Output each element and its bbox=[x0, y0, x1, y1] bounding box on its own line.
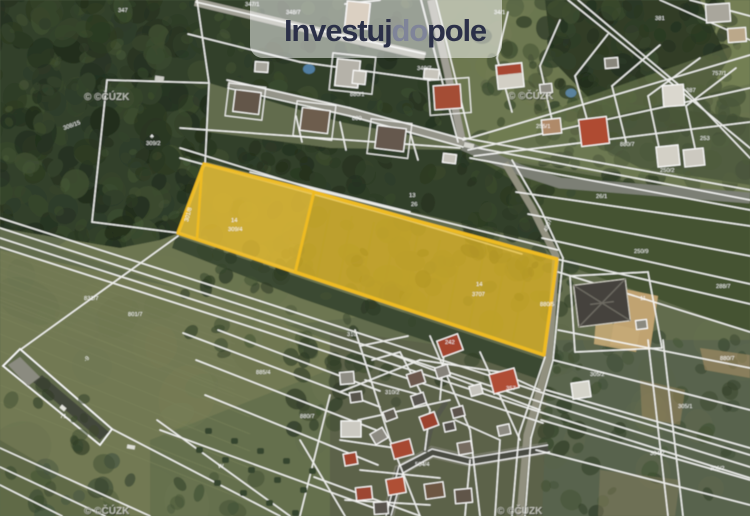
svg-text:13: 13 bbox=[409, 193, 415, 199]
svg-text:255/1: 255/1 bbox=[536, 124, 551, 130]
svg-text:880/7: 880/7 bbox=[620, 142, 635, 148]
svg-text:304/2: 304/2 bbox=[650, 451, 665, 457]
svg-text:250/2: 250/2 bbox=[660, 168, 675, 174]
svg-text:880/7: 880/7 bbox=[300, 414, 315, 420]
svg-text:11: 11 bbox=[640, 296, 646, 302]
svg-text:387: 387 bbox=[686, 88, 696, 94]
svg-text:26: 26 bbox=[411, 202, 417, 208]
svg-text:305/1: 305/1 bbox=[678, 404, 693, 410]
svg-text:310: 310 bbox=[347, 332, 357, 338]
svg-text:880/5: 880/5 bbox=[540, 302, 555, 308]
svg-text:310/2: 310/2 bbox=[385, 390, 400, 396]
svg-text:357: 357 bbox=[506, 386, 516, 392]
svg-text:340/7: 340/7 bbox=[417, 66, 432, 72]
svg-text:288/7: 288/7 bbox=[716, 284, 731, 290]
svg-text:306/2: 306/2 bbox=[710, 466, 725, 472]
svg-text:© ©ČÚZK: © ©ČÚZK bbox=[84, 504, 130, 516]
svg-text:W: W bbox=[218, 464, 224, 470]
svg-text:885/4: 885/4 bbox=[256, 370, 271, 376]
svg-text:757/1: 757/1 bbox=[712, 71, 727, 77]
svg-text:242: 242 bbox=[445, 340, 455, 346]
svg-text:71: 71 bbox=[60, 414, 66, 420]
svg-text:♣: ♣ bbox=[150, 134, 154, 140]
svg-text:801/7: 801/7 bbox=[128, 312, 143, 318]
svg-text:© ©ČÚZK: © ©ČÚZK bbox=[497, 504, 543, 516]
svg-text:26/1: 26/1 bbox=[596, 194, 607, 200]
svg-text:381: 381 bbox=[655, 16, 665, 22]
svg-text:Investujdopole: Investujdopole bbox=[284, 13, 487, 48]
svg-text:3707: 3707 bbox=[472, 292, 485, 298]
svg-text:831/7: 831/7 bbox=[84, 296, 99, 302]
svg-text:14: 14 bbox=[476, 282, 483, 288]
svg-text:305/2: 305/2 bbox=[590, 372, 605, 378]
svg-text:253: 253 bbox=[700, 136, 710, 142]
svg-text:309/2: 309/2 bbox=[146, 141, 161, 147]
svg-text:250/9: 250/9 bbox=[634, 249, 649, 255]
svg-text:309/4: 309/4 bbox=[228, 227, 243, 233]
svg-text:© ©ČÚZK: © ©ČÚZK bbox=[508, 89, 554, 102]
svg-text:© ©ČÚZK: © ©ČÚZK bbox=[84, 90, 130, 103]
svg-text:504/4: 504/4 bbox=[415, 462, 430, 468]
svg-text:880/7: 880/7 bbox=[720, 356, 735, 362]
svg-text:880: 880 bbox=[352, 116, 362, 122]
svg-text:880/1: 880/1 bbox=[350, 92, 365, 98]
svg-text:14: 14 bbox=[231, 218, 238, 224]
svg-text:347: 347 bbox=[118, 8, 128, 14]
